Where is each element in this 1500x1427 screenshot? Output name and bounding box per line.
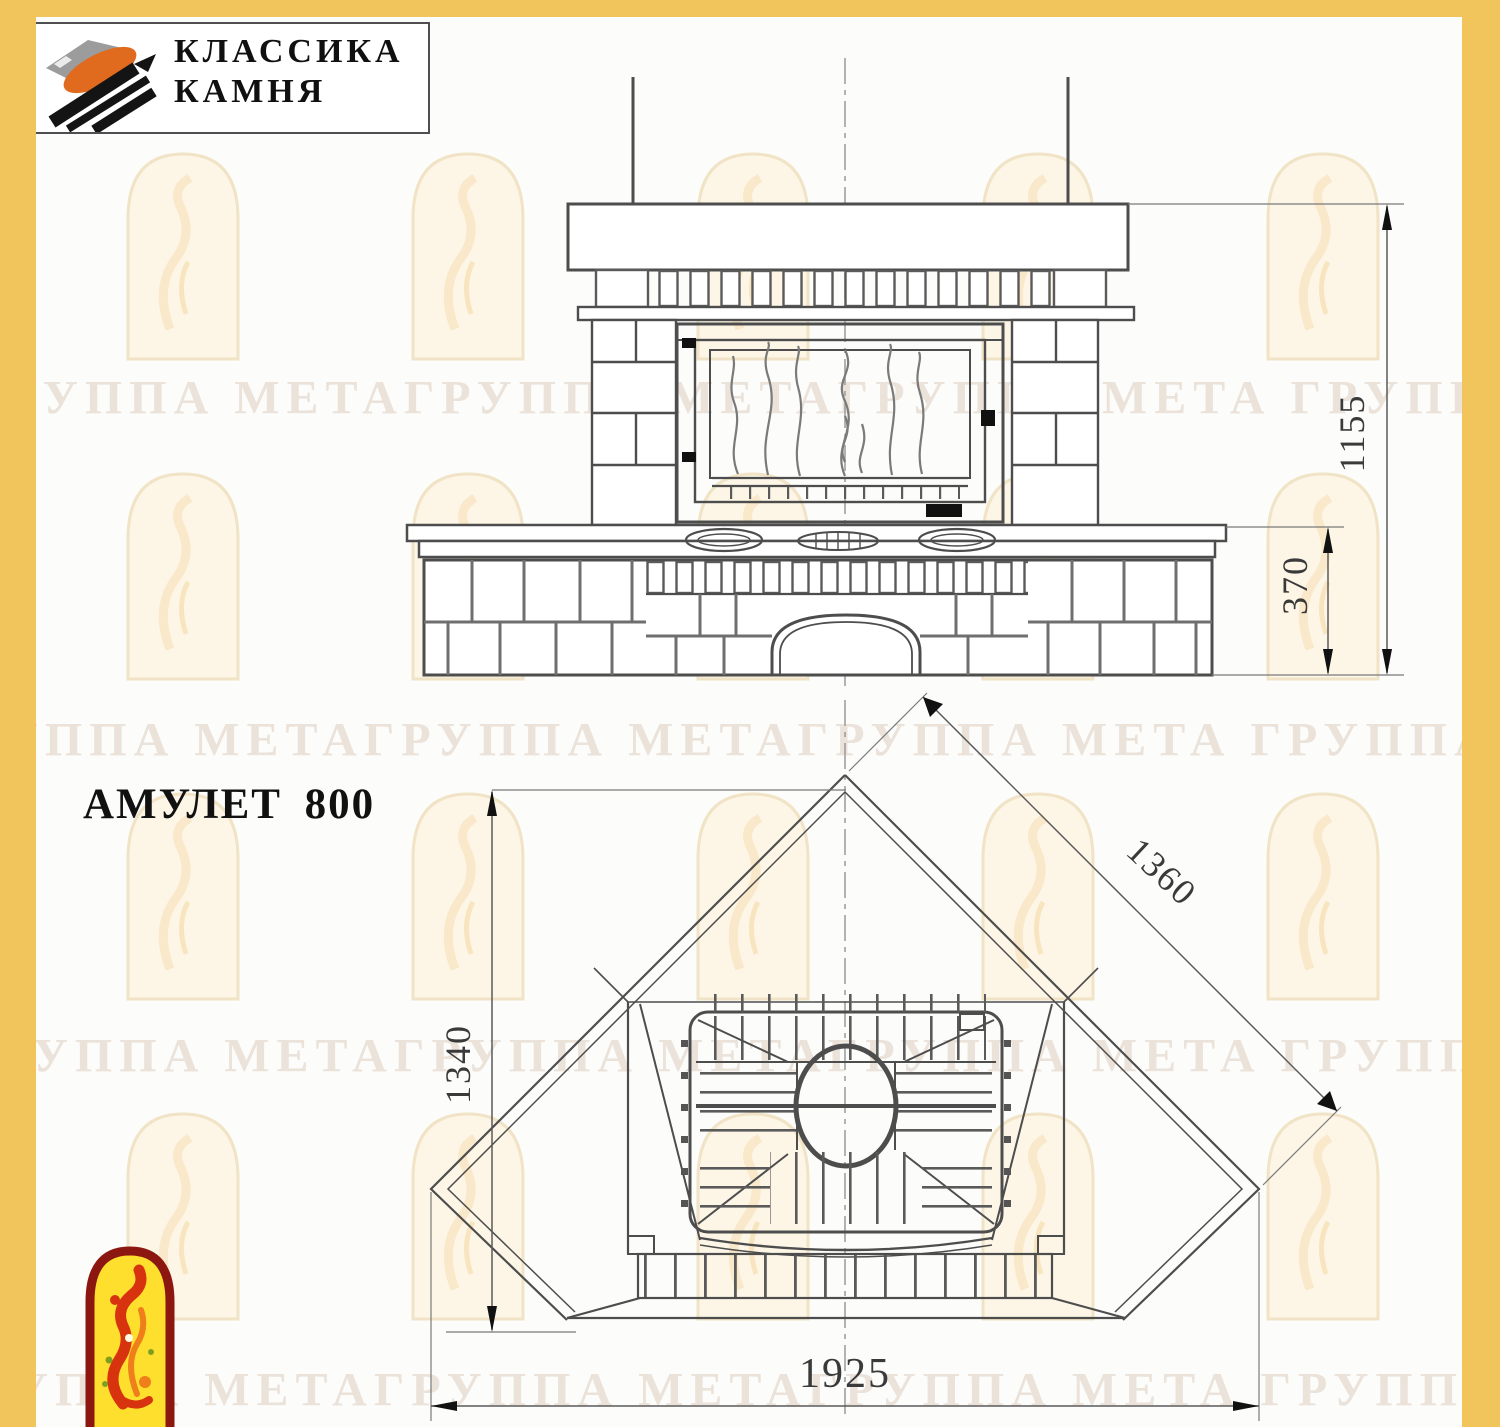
dimension-label-overall-height: 1155 xyxy=(1331,394,1373,473)
base-plinth xyxy=(424,560,1212,675)
company-name-line2: КАМНЯ xyxy=(174,72,404,112)
latch xyxy=(981,410,995,426)
dimension-label-corner-depth: 1340 xyxy=(437,1024,479,1104)
company-name-line1: КЛАССИКА xyxy=(174,32,404,72)
scanned-drawing-sheet: ГРУППА МЕТАГРУППА МЕТАГРУППА МЕТА ГРУППА… xyxy=(0,0,1500,1427)
firebird-logo xyxy=(85,1242,175,1427)
column-left xyxy=(592,320,676,525)
stone-stack-icon xyxy=(38,26,174,132)
insert-glass xyxy=(710,350,970,478)
hinge-top xyxy=(682,338,696,348)
column-right xyxy=(1012,320,1098,525)
page-title: АМУЛЕТ 800 xyxy=(83,780,375,829)
plan-view xyxy=(431,700,1259,1418)
base-dentil-band xyxy=(646,561,1028,594)
company-name: КЛАССИКА КАМНЯ xyxy=(174,32,404,112)
front-view xyxy=(407,58,1226,692)
hinge-bottom xyxy=(682,452,696,462)
insert-plan xyxy=(681,994,1011,1232)
dentil-band xyxy=(596,270,1106,307)
hearth-front-plan xyxy=(567,1236,1125,1318)
company-logo: КЛАССИКА КАМНЯ xyxy=(28,22,430,134)
page-border-top xyxy=(0,0,1500,17)
door-handle xyxy=(926,504,962,517)
mantel-shelf xyxy=(568,204,1128,270)
flames xyxy=(731,342,923,476)
dimension-label-overall-width: 1925 xyxy=(799,1350,891,1398)
page-border-right xyxy=(1462,0,1500,1427)
grate xyxy=(712,478,968,499)
firebox-insert xyxy=(677,324,1003,522)
technical-drawing xyxy=(0,0,1500,1427)
dimension-label-bench-height: 370 xyxy=(1274,555,1316,615)
chimney-pipes xyxy=(633,77,1068,204)
page-border-left xyxy=(0,0,36,1427)
dentil-rail xyxy=(578,307,1134,320)
